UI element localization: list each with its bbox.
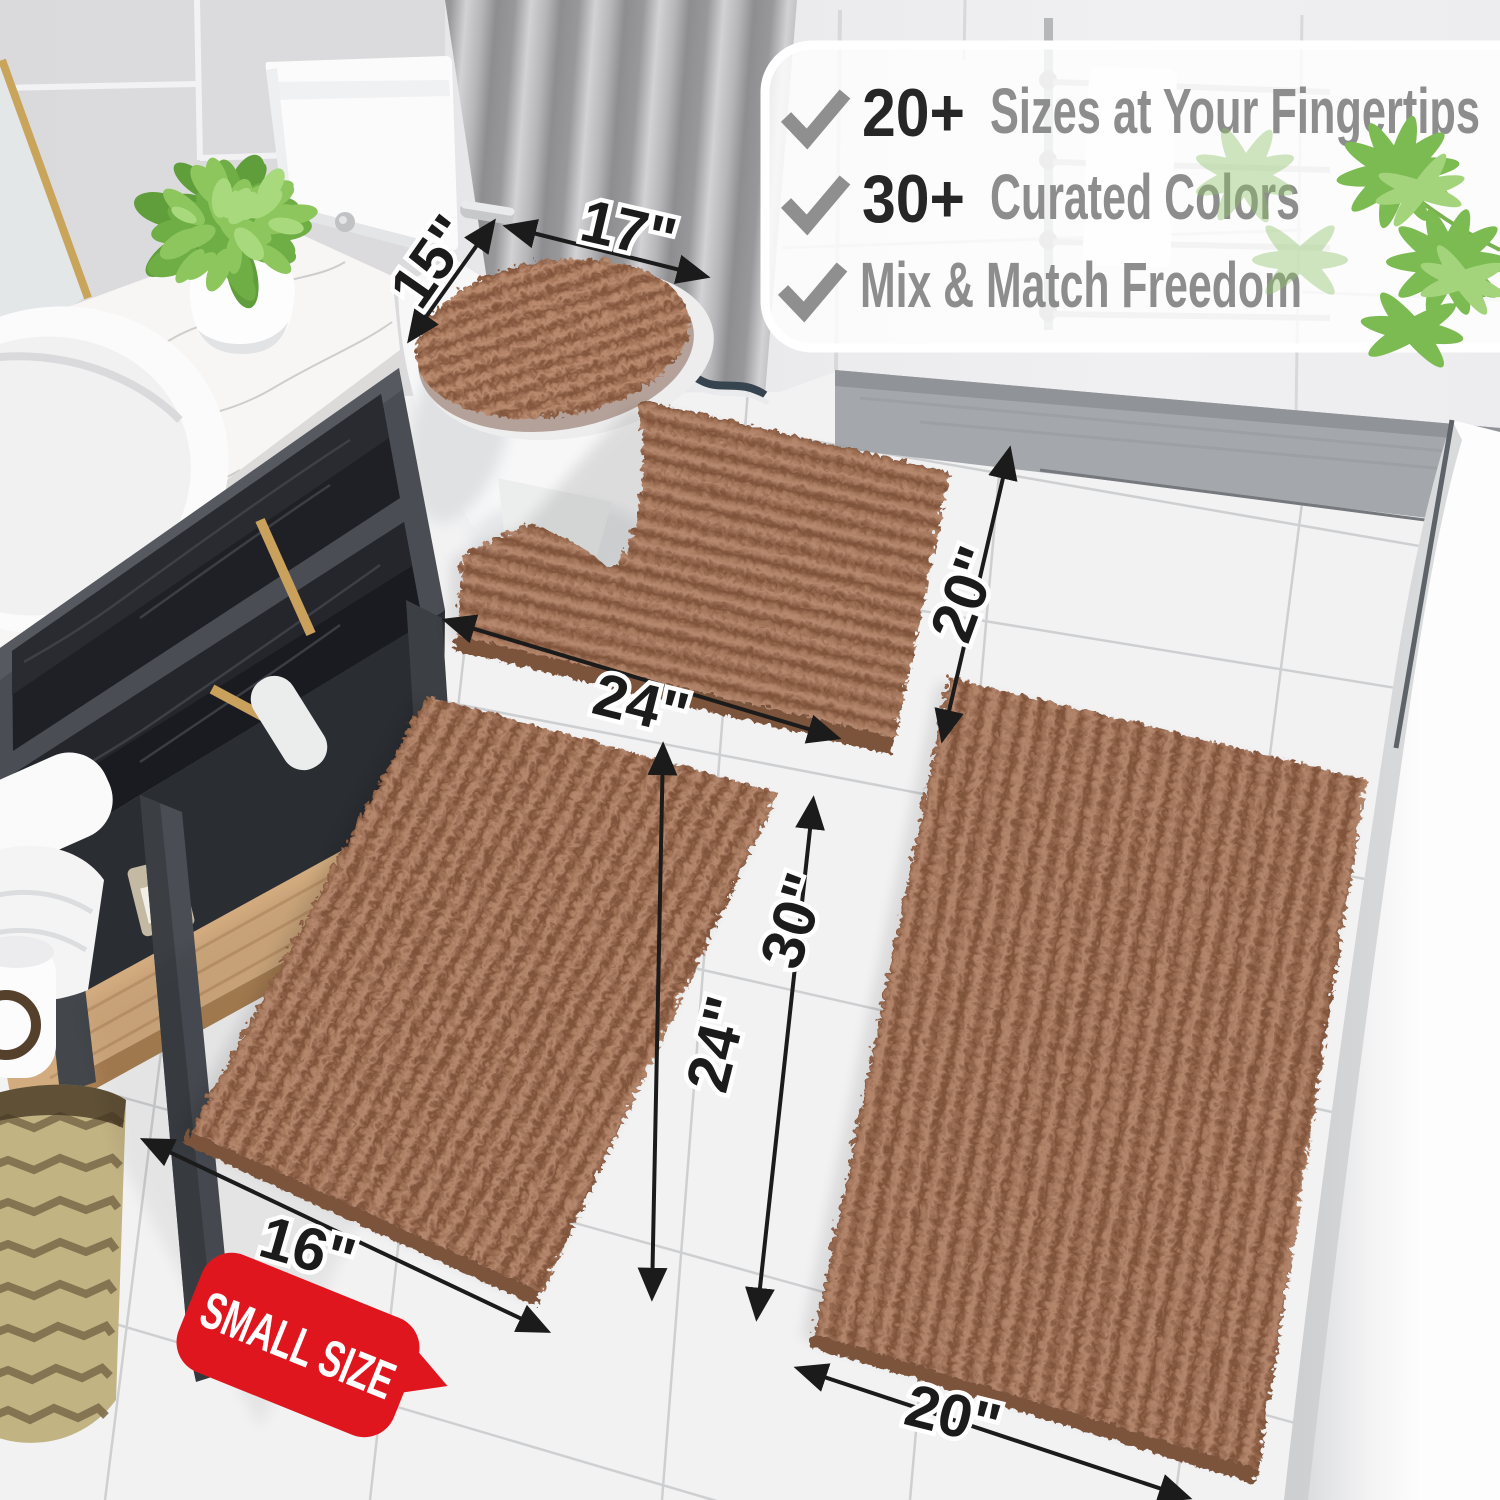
svg-text:30+: 30+ [862, 161, 965, 237]
svg-text:20+: 20+ [862, 75, 965, 151]
svg-text:Mix & Match Freedom: Mix & Match Freedom [860, 249, 1302, 321]
